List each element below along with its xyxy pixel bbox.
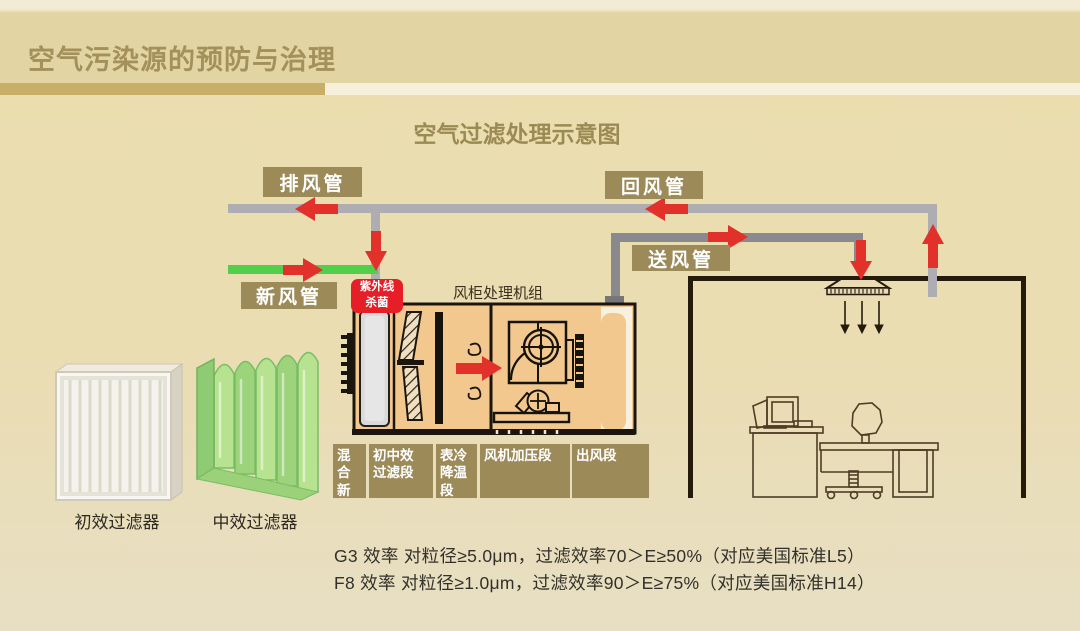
room-return-up-arrow [922,224,944,268]
room-outline [688,276,1026,498]
return-duct-label: 回风管 [605,171,703,199]
fresh-air-duct-label: 新风管 [241,282,337,309]
supply-duct-vertical [611,235,620,305]
medium-filter-photo [197,352,318,500]
uv-sterilization-badge: 紫外线 杀菌 [351,279,403,313]
return-left-arrow [645,197,688,221]
ahu-section-filter: 初中效 过滤段 [369,444,433,498]
medium-filter-caption: 中效过滤器 [195,508,315,533]
supply-down-arrow [850,240,872,280]
ahu-section-cooling: 表冷 降温 段 [436,444,477,498]
efficiency-note-f8: F8 效率 对粒径≥1.0μm，过滤效率90＞E≥75%（对应美国标准H14） [334,570,875,595]
office-furniture [750,397,938,499]
air-filtration-diagram [0,0,1080,631]
exhaust-left-arrow [295,197,338,221]
ahu-section-mixing: 混合 新风 段 [333,444,366,498]
efficiency-note-g3: G3 效率 对粒径≥5.0μm，过滤效率70＞E≥50%（对应美国标准L5） [334,543,865,568]
fresh-right-arrow [283,258,323,282]
ahu-section-outlet: 出风段 [572,444,649,498]
ahu-section-fan: 风机加压段 [480,444,570,498]
supply-duct-label: 送风管 [632,245,730,271]
slide: 空气污染源的预防与治理 空气过滤处理示意图 [0,0,1080,631]
exhaust-duct-label: 排风管 [263,167,362,197]
ceiling-diffuser [827,279,889,295]
ahu-title: 风柜处理机组 [433,282,563,303]
primary-filter-photo [56,364,182,500]
airflow-down-arrows [841,301,883,333]
primary-filter-caption: 初效过滤器 [57,508,177,533]
